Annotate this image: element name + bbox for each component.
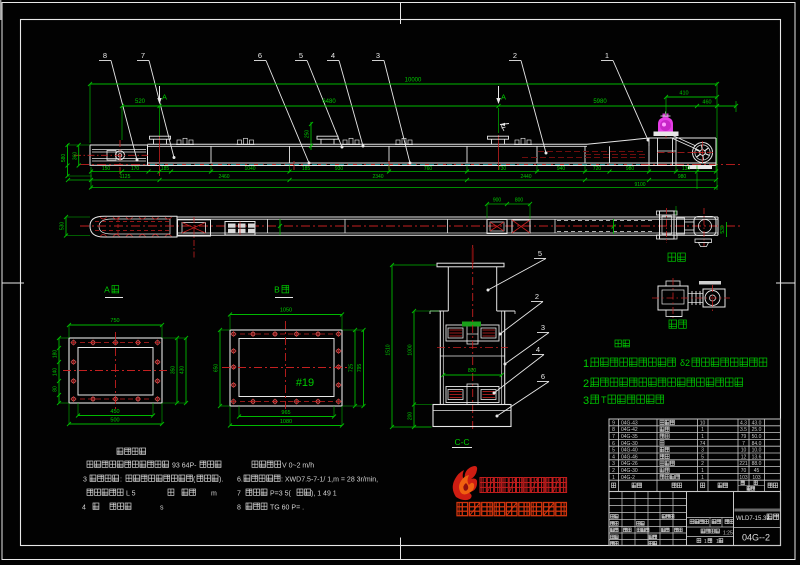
svg-text:5: 5 bbox=[612, 448, 615, 454]
svg-text:13.6: 13.6 bbox=[752, 454, 762, 460]
svg-text:5: 5 bbox=[299, 51, 303, 60]
svg-text:3: 3 bbox=[541, 323, 545, 332]
svg-text:T: T bbox=[601, 395, 607, 405]
svg-text:140: 140 bbox=[53, 368, 59, 377]
svg-text:5: 5 bbox=[538, 249, 542, 258]
svg-text:2: 2 bbox=[535, 292, 539, 301]
svg-text:221: 221 bbox=[739, 461, 748, 467]
svg-text:74: 74 bbox=[700, 441, 706, 447]
svg-text:7: 7 bbox=[612, 434, 615, 440]
svg-text:103: 103 bbox=[752, 475, 761, 481]
svg-text:7: 7 bbox=[141, 51, 145, 60]
svg-text:350: 350 bbox=[171, 366, 177, 375]
svg-text:80: 80 bbox=[53, 386, 59, 392]
svg-text:#19: #19 bbox=[296, 377, 314, 389]
svg-text:360: 360 bbox=[73, 152, 79, 161]
svg-text:800: 800 bbox=[468, 368, 477, 374]
svg-text:185: 185 bbox=[302, 166, 311, 172]
svg-text:2: 2 bbox=[612, 468, 615, 474]
svg-text:725: 725 bbox=[349, 364, 355, 373]
svg-text:1: 1 bbox=[612, 475, 615, 481]
svg-text:180: 180 bbox=[53, 350, 59, 359]
svg-text:130: 130 bbox=[682, 166, 691, 172]
svg-text:6: 6 bbox=[258, 51, 262, 60]
svg-text:4.3: 4.3 bbox=[740, 420, 747, 426]
svg-text:1: 1 bbox=[605, 51, 609, 60]
svg-text:4: 4 bbox=[536, 345, 540, 354]
svg-text:10: 10 bbox=[741, 448, 747, 454]
svg-text:530: 530 bbox=[720, 225, 726, 234]
svg-text:1510: 1510 bbox=[386, 344, 392, 355]
svg-text:), 1 49 1: ), 1 49 1 bbox=[311, 491, 337, 498]
svg-text:04G-43: 04G-43 bbox=[621, 420, 638, 426]
svg-text:250: 250 bbox=[305, 130, 311, 139]
svg-text:V 0~2 m/h: V 0~2 m/h bbox=[282, 463, 314, 470]
svg-text:1125: 1125 bbox=[120, 174, 131, 180]
svg-text:A: A bbox=[501, 93, 506, 102]
svg-text:6: 6 bbox=[541, 372, 545, 381]
svg-text:1: 1 bbox=[701, 468, 704, 474]
svg-text:A: A bbox=[162, 93, 167, 102]
svg-text:980: 980 bbox=[678, 174, 687, 180]
svg-text:9100: 9100 bbox=[634, 182, 645, 188]
svg-text:δ2: δ2 bbox=[680, 358, 690, 368]
svg-text:84.0: 84.0 bbox=[752, 441, 762, 447]
svg-text:750: 750 bbox=[110, 318, 119, 324]
svg-text:450: 450 bbox=[110, 409, 119, 415]
svg-text:1080: 1080 bbox=[280, 419, 292, 425]
svg-text:760: 760 bbox=[424, 166, 433, 172]
svg-text:460: 460 bbox=[702, 100, 711, 106]
svg-text:580: 580 bbox=[61, 154, 67, 163]
svg-text:93 64P-: 93 64P- bbox=[172, 463, 197, 470]
svg-text:04G-30: 04G-30 bbox=[621, 468, 638, 474]
svg-text:04G-2: 04G-2 bbox=[621, 475, 635, 481]
svg-text:3: 3 bbox=[701, 448, 704, 454]
svg-text:6: 6 bbox=[612, 441, 615, 447]
svg-text:650: 650 bbox=[214, 364, 220, 373]
svg-text:10000: 10000 bbox=[405, 78, 422, 84]
svg-text:430: 430 bbox=[180, 366, 186, 375]
svg-text:720: 720 bbox=[593, 166, 602, 172]
svg-text:L 5: L 5 bbox=[126, 491, 136, 498]
svg-text:04G-46: 04G-46 bbox=[621, 454, 638, 460]
svg-text:150: 150 bbox=[102, 166, 111, 172]
svg-text:530: 530 bbox=[60, 222, 66, 231]
svg-text:7: 7 bbox=[742, 441, 745, 447]
svg-text:4: 4 bbox=[82, 505, 86, 512]
svg-text:3: 3 bbox=[83, 477, 87, 484]
svg-text:3.5: 3.5 bbox=[740, 427, 747, 433]
svg-text:12: 12 bbox=[741, 454, 747, 460]
svg-text:965: 965 bbox=[281, 410, 290, 416]
svg-text:45: 45 bbox=[754, 468, 760, 474]
svg-text:: XWD7.5-7-1/ 1,m = 28 3r/min,: : XWD7.5-7-1/ 1,m = 28 3r/min, bbox=[281, 477, 378, 484]
svg-text:C-C: C-C bbox=[454, 437, 469, 447]
svg-text:1040: 1040 bbox=[244, 166, 255, 172]
svg-text:1:25: 1:25 bbox=[723, 531, 733, 537]
svg-text:B: B bbox=[274, 285, 280, 295]
svg-text:3: 3 bbox=[376, 51, 380, 60]
svg-text:43.0: 43.0 bbox=[752, 420, 762, 426]
svg-text:70: 70 bbox=[741, 468, 747, 474]
svg-text:10.0: 10.0 bbox=[752, 448, 762, 454]
svg-text:P=3 5(: P=3 5( bbox=[270, 491, 291, 498]
svg-text:5: 5 bbox=[701, 454, 704, 460]
svg-text:800: 800 bbox=[515, 198, 524, 204]
svg-text:04G-42: 04G-42 bbox=[621, 427, 638, 433]
svg-text:s: s bbox=[160, 505, 164, 512]
svg-text:04G-30: 04G-30 bbox=[621, 441, 638, 447]
svg-text:5980: 5980 bbox=[593, 99, 607, 105]
svg-text:04G-35: 04G-35 bbox=[621, 434, 638, 440]
svg-text:185: 185 bbox=[161, 166, 170, 172]
svg-text:TG 60 P= .: TG 60 P= . bbox=[270, 505, 304, 512]
svg-text:1000: 1000 bbox=[408, 344, 414, 355]
svg-text:200: 200 bbox=[408, 412, 414, 421]
svg-text:8: 8 bbox=[103, 51, 107, 60]
svg-text:79: 79 bbox=[741, 434, 747, 440]
svg-text:930: 930 bbox=[335, 166, 344, 172]
svg-text:103: 103 bbox=[739, 475, 748, 481]
svg-text:4: 4 bbox=[331, 51, 335, 60]
svg-text:1: 1 bbox=[716, 539, 719, 545]
svg-text:1: 1 bbox=[704, 539, 707, 545]
svg-text:795: 795 bbox=[357, 364, 363, 373]
svg-text:).: ). bbox=[219, 477, 223, 484]
svg-text:25.0: 25.0 bbox=[752, 427, 762, 433]
svg-text:A: A bbox=[104, 285, 110, 295]
svg-text:7: 7 bbox=[237, 491, 241, 498]
svg-text:410: 410 bbox=[679, 91, 688, 97]
svg-text:730: 730 bbox=[498, 166, 507, 172]
svg-text:2: 2 bbox=[513, 51, 517, 60]
svg-text:WLD7-15.37: WLD7-15.37 bbox=[736, 516, 770, 522]
svg-text:900: 900 bbox=[493, 198, 502, 204]
svg-text:500: 500 bbox=[110, 418, 119, 424]
svg-text:2: 2 bbox=[701, 461, 704, 467]
svg-text:9: 9 bbox=[612, 420, 615, 426]
svg-text:1: 1 bbox=[701, 427, 704, 433]
svg-text:6.: 6. bbox=[237, 477, 243, 484]
svg-text:3: 3 bbox=[612, 461, 615, 467]
svg-text:980: 980 bbox=[626, 166, 635, 172]
svg-text:m: m bbox=[211, 491, 217, 498]
svg-text:1: 1 bbox=[701, 434, 704, 440]
svg-text:50.0: 50.0 bbox=[752, 434, 762, 440]
svg-text::: : bbox=[120, 477, 122, 484]
svg-text:1050: 1050 bbox=[280, 308, 292, 314]
svg-text:2460: 2460 bbox=[218, 174, 229, 180]
svg-text:170: 170 bbox=[131, 166, 140, 172]
svg-text:04G-26: 04G-26 bbox=[621, 461, 638, 467]
svg-text:6480: 6480 bbox=[322, 99, 336, 105]
svg-text:10: 10 bbox=[700, 420, 706, 426]
svg-text:8: 8 bbox=[612, 427, 615, 433]
svg-text:4: 4 bbox=[612, 454, 615, 460]
svg-text:04G-40: 04G-40 bbox=[621, 448, 638, 454]
svg-text:2340: 2340 bbox=[372, 174, 383, 180]
svg-text:2440: 2440 bbox=[520, 174, 531, 180]
svg-text:940: 940 bbox=[557, 166, 566, 172]
svg-text:04G--2: 04G--2 bbox=[742, 533, 770, 543]
svg-text:88.0: 88.0 bbox=[752, 461, 762, 467]
svg-text:1: 1 bbox=[701, 475, 704, 481]
svg-text:520: 520 bbox=[135, 99, 146, 105]
svg-text:8: 8 bbox=[237, 505, 241, 512]
